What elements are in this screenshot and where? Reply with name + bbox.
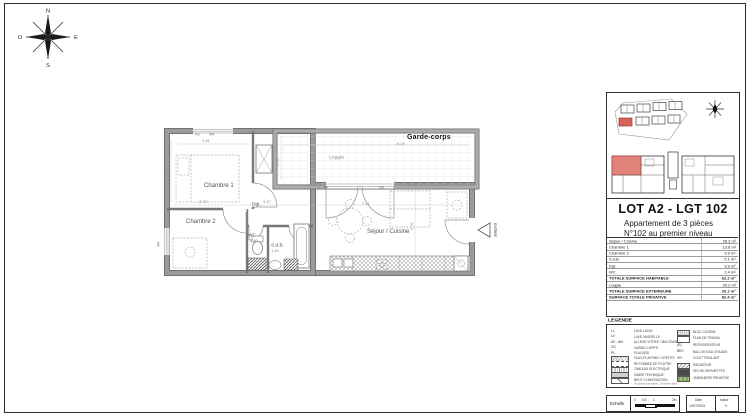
dim-626: 6.26 <box>397 142 405 146</box>
compass-o-label: O <box>18 35 23 41</box>
floor-plan-drawing: ENTREE <box>163 128 508 280</box>
pf-label: PF <box>324 186 329 190</box>
dim-279: 2.79 <box>199 200 207 204</box>
drawing-sheet: N E S O <box>0 0 750 420</box>
legend-swatch-seche-serviettes <box>677 369 690 376</box>
room-label-loggia: Loggia <box>329 155 344 160</box>
dim-347: 3.47 <box>263 200 271 204</box>
legend-swatch-bloc-cuisine <box>677 330 690 337</box>
room-label-chambre-2: Chambre 2 <box>186 219 216 225</box>
vr-label: VR <box>379 186 384 190</box>
dim-721: 7.21 <box>362 202 370 206</box>
dim-140: 1.40 <box>271 249 279 253</box>
indice-box: Indice 0 <box>715 395 739 412</box>
exterior-walls <box>167 131 477 273</box>
indice-value: 0 <box>725 404 727 408</box>
site-plan-highlighted-building <box>619 118 632 126</box>
legend-swatch-jardiniere <box>677 376 690 383</box>
scale-box: Echelle 0 0.5 1 2m <box>606 395 680 412</box>
compass-e-label: E <box>74 35 78 41</box>
scale-bar-segment <box>655 404 675 407</box>
title-divider <box>607 198 739 199</box>
table-row-total-privative: SURFACE TOTALE PRIVATIVE82.4 m² <box>607 295 738 301</box>
dim-502: 5.02 <box>410 222 414 230</box>
kitchen-counter <box>330 256 470 271</box>
dim-281: 2.81 <box>202 139 210 143</box>
surface-table: Séjour / Cuisine28.3 m² Chambre 113.6 m²… <box>607 237 738 301</box>
vr3-label: VR <box>157 242 161 247</box>
lot-title: LOT A2 - LGT 102 <box>607 202 739 216</box>
room-label-wc: WC <box>248 233 256 238</box>
room-label-sdb: S.d.B. <box>271 243 284 248</box>
dim-090: 0.90 <box>250 239 258 243</box>
date-label: Date <box>695 398 702 402</box>
room-label-sejour-cuisine: Séjour / Cuisine <box>367 229 409 235</box>
date-box: Date 19/07/2024 <box>686 395 717 412</box>
compass-s-label: S <box>46 63 50 69</box>
date-value: 19/07/2024 <box>689 404 705 408</box>
legend-swatch-brut-clim <box>611 378 629 384</box>
compass-n-label: N <box>46 9 50 15</box>
scale-bar-segment <box>635 404 645 407</box>
title-block-panel: LOT A2 - LGT 102 Appartement de 3 pièces… <box>606 92 740 317</box>
dim-161: 1.61 <box>276 158 280 166</box>
site-plan-thumbnail <box>609 96 737 148</box>
compass-rose-icon: N E S O <box>14 6 82 70</box>
lot-subtitle-1: Appartement de 3 pièces <box>624 219 713 228</box>
legend-swatch-radiateur <box>677 363 690 370</box>
garde-corps-label: Garde-corps <box>407 134 451 141</box>
duct-closet <box>256 145 272 173</box>
entrance-marker: ENTREE <box>478 223 497 238</box>
vr2-label: VR <box>209 133 214 137</box>
key-plan-thumbnail <box>609 149 737 199</box>
floor-plan: ENTREE <box>163 128 508 280</box>
legend-panel: LLLAVE-LINGE LVLAVE-VAISSELLE AV - AMALL… <box>606 324 740 388</box>
fs-label: FS <box>195 133 200 137</box>
echelle-label: Echelle <box>610 401 624 406</box>
entree-label: ENTREE <box>493 223 497 237</box>
indice-label: Indice <box>720 398 729 402</box>
legend-title: LEGENDE <box>608 317 632 323</box>
key-plan-highlighted-unit <box>612 156 641 175</box>
dim-360: 3.60 <box>166 170 170 178</box>
room-label-dgt: Dgt. <box>252 202 261 207</box>
legend-swatch-plan-travail <box>677 336 690 343</box>
room-label-chambre-1: Chambre 1 <box>204 183 234 189</box>
